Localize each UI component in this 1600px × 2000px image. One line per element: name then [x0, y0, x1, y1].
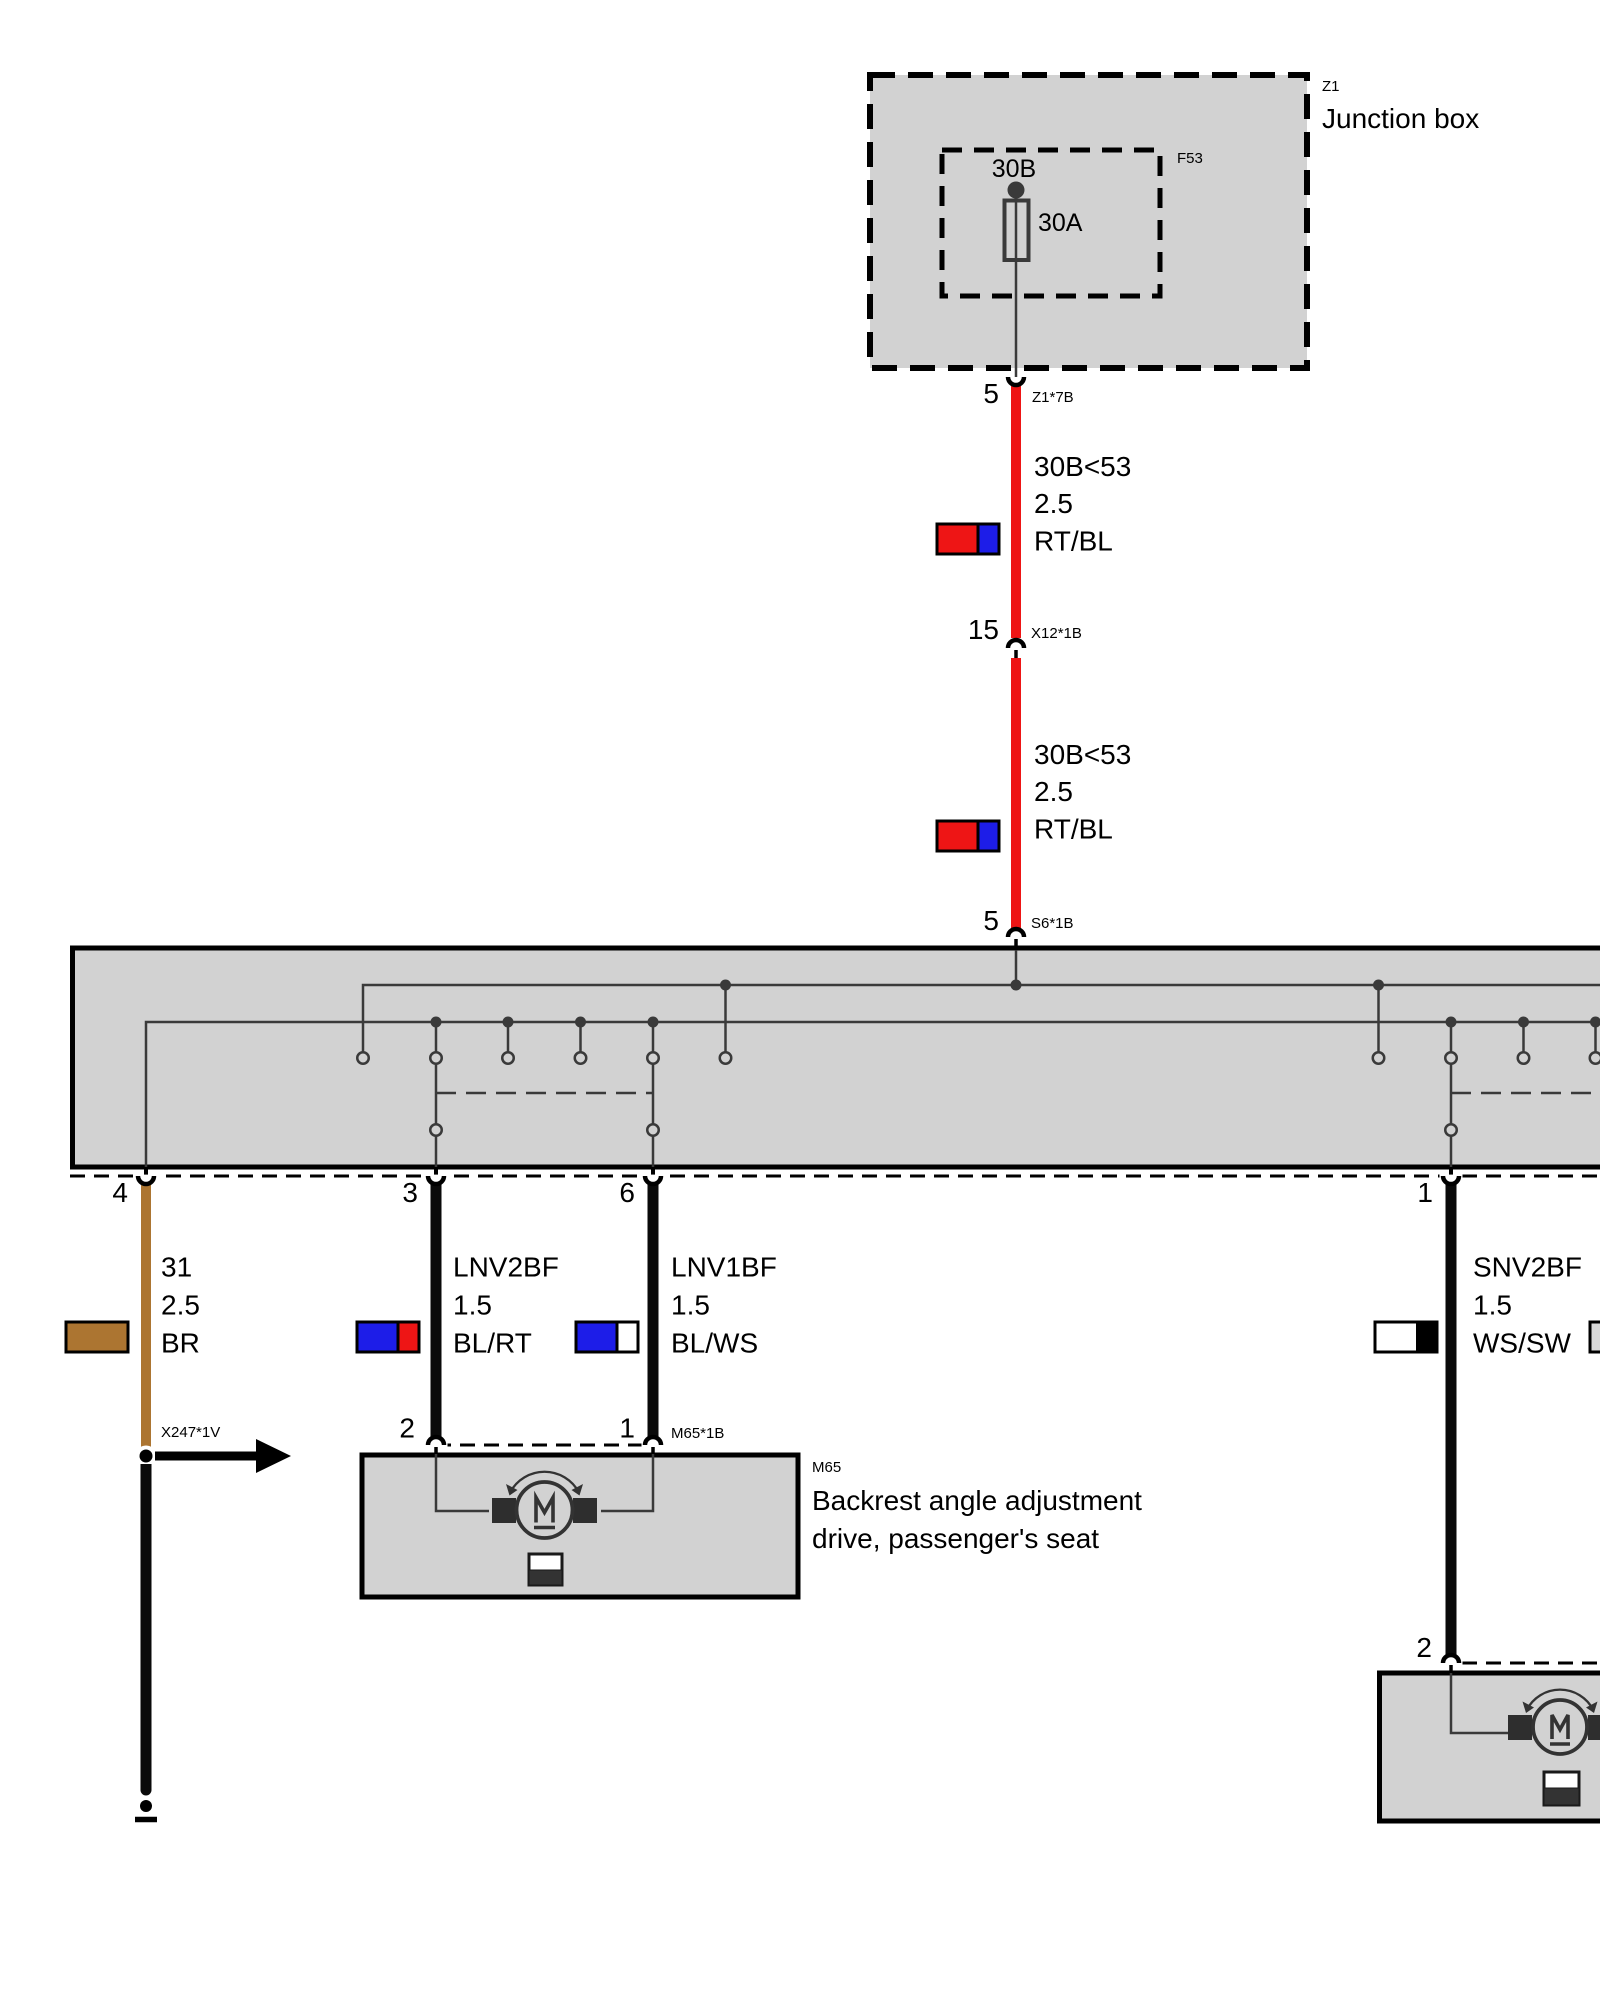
svg-text:2: 2	[1416, 1632, 1432, 1663]
svg-text:30B<53: 30B<53	[1034, 739, 1131, 770]
svg-text:30A: 30A	[1038, 209, 1083, 237]
svg-text:drive, passenger's seat: drive, passenger's seat	[812, 1523, 1099, 1554]
svg-text:BR: BR	[161, 1328, 200, 1359]
svg-text:LNV2BF: LNV2BF	[453, 1252, 559, 1283]
svg-text:WS/SW: WS/SW	[1473, 1328, 1572, 1359]
svg-text:30B: 30B	[992, 155, 1036, 183]
svg-text:BL/RT: BL/RT	[453, 1328, 532, 1359]
svg-text:S6*1B: S6*1B	[1031, 915, 1074, 932]
svg-text:X12*1B: X12*1B	[1031, 625, 1082, 642]
svg-text:1.5: 1.5	[671, 1290, 710, 1321]
svg-text:2.5: 2.5	[1034, 488, 1073, 519]
svg-text:M65: M65	[812, 1459, 841, 1476]
svg-text:6: 6	[619, 1177, 635, 1208]
svg-text:3: 3	[402, 1177, 418, 1208]
svg-text:BL/WS: BL/WS	[671, 1328, 758, 1359]
svg-text:5: 5	[983, 378, 999, 409]
svg-text:2.5: 2.5	[161, 1290, 200, 1321]
svg-text:M65*1B: M65*1B	[671, 1425, 724, 1442]
svg-text:Z1*7B: Z1*7B	[1032, 389, 1074, 406]
svg-text:Backrest angle adjustment: Backrest angle adjustment	[812, 1485, 1142, 1516]
svg-text:2.5: 2.5	[1034, 776, 1073, 807]
svg-text:X247*1V: X247*1V	[161, 1424, 220, 1441]
svg-text:1: 1	[619, 1413, 635, 1444]
svg-text:RT/BL: RT/BL	[1034, 814, 1113, 845]
svg-text:31: 31	[161, 1252, 192, 1283]
svg-text:F53: F53	[1177, 150, 1203, 167]
svg-text:1.5: 1.5	[453, 1290, 492, 1321]
svg-text:15: 15	[968, 614, 999, 645]
svg-text:1: 1	[1417, 1177, 1433, 1208]
svg-text:2: 2	[399, 1413, 415, 1444]
svg-text:Junction box: Junction box	[1322, 103, 1479, 134]
svg-text:Z1: Z1	[1322, 78, 1340, 95]
svg-text:SNV2BF: SNV2BF	[1473, 1252, 1582, 1283]
svg-text:LNV1BF: LNV1BF	[671, 1252, 777, 1283]
svg-text:1.5: 1.5	[1473, 1290, 1512, 1321]
svg-text:4: 4	[112, 1177, 128, 1208]
svg-text:5: 5	[983, 905, 999, 936]
svg-text:30B<53: 30B<53	[1034, 451, 1131, 482]
svg-text:RT/BL: RT/BL	[1034, 526, 1113, 557]
